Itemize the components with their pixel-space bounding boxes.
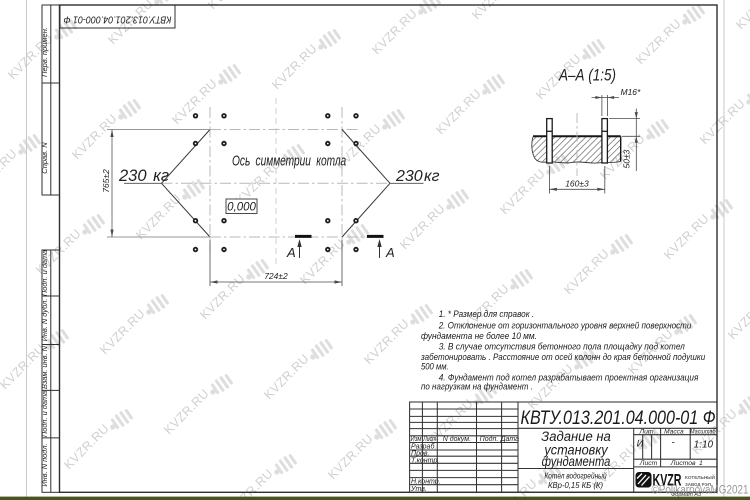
- svg-text:по нагрузкам на фундамент .: по нагрузкам на фундамент .: [421, 381, 533, 392]
- svg-text:КВТУ.013.201.04.000-01 Ф: КВТУ.013.201.04.000-01 Ф: [63, 14, 171, 25]
- svg-text:Т.контр.: Т.контр.: [411, 457, 439, 464]
- svg-text:765±2: 765±2: [101, 169, 111, 193]
- svg-text:Инв. N дубл.: Инв. N дубл.: [40, 299, 49, 342]
- svg-text:Пров.: Пров.: [411, 450, 430, 457]
- svg-text:Лит.: Лит.: [638, 428, 655, 435]
- svg-text:Подп. и дата: Подп. и дата: [40, 250, 49, 296]
- svg-text:забетонировать . Расстояние от: забетонировать . Расстояние от осей коло…: [420, 351, 705, 362]
- svg-text:Ось симметрии котла: Ось симметрии котла: [232, 153, 346, 169]
- svg-text:Справ. N: Справ. N: [40, 142, 49, 174]
- svg-text:N докум.: N докум.: [443, 435, 471, 443]
- svg-text:230 кг: 230 кг: [118, 167, 169, 185]
- svg-text:Изм: Изм: [411, 436, 422, 443]
- svg-text:фундамента не более 10 мм.: фундамента не более 10 мм.: [421, 331, 537, 342]
- svg-text:Н.контр.: Н.контр.: [411, 479, 441, 486]
- svg-text:Разраб.: Разраб.: [411, 443, 436, 451]
- svg-text:Перв. примен.: Перв. примен.: [40, 27, 49, 77]
- svg-text:©PolikarpovaMG2021: ©PolikarpovaMG2021: [652, 485, 749, 497]
- svg-text:Инв. N подл.: Инв. N подл.: [40, 443, 49, 486]
- svg-text:КВТУ.013.201.04.000-01 Ф: КВТУ.013.201.04.000-01 Ф: [521, 408, 716, 429]
- svg-text:724±2: 724±2: [264, 271, 288, 281]
- svg-text:Масса: Масса: [664, 428, 684, 435]
- svg-text:1: 1: [699, 460, 703, 467]
- svg-text:Подп. и дата: Подп. и дата: [40, 391, 49, 437]
- svg-text:50±3: 50±3: [622, 149, 632, 168]
- svg-text:Дата: Дата: [500, 436, 520, 443]
- svg-text:Взам. инв. N: Взам. инв. N: [40, 345, 49, 389]
- svg-text:0,000: 0,000: [227, 202, 256, 214]
- svg-text:2. Отклонение от горизонтально: 2. Отклонение от горизонтального уровня …: [438, 320, 692, 331]
- svg-text:Котел водогрейный: Котел водогрейный: [544, 471, 606, 481]
- svg-text:Подп.: Подп.: [480, 435, 499, 443]
- svg-text:А: А: [286, 245, 296, 260]
- svg-text:Лист: Лист: [423, 436, 437, 443]
- svg-text:А: А: [385, 245, 395, 260]
- svg-text:И: И: [637, 439, 644, 450]
- svg-text:А–А (1:5): А–А (1:5): [558, 67, 616, 85]
- svg-text:1:10: 1:10: [694, 440, 714, 451]
- svg-text:фундамента: фундамента: [542, 454, 611, 469]
- svg-text:230 кг: 230 кг: [395, 168, 440, 185]
- svg-text:Масштаб: Масштаб: [690, 427, 716, 435]
- svg-text:3. В случае отсутствия бетонно: 3. В случае отсутствия бетонного пола пл…: [439, 341, 685, 352]
- svg-text:КВр-0,15 КБ (К): КВр-0,15 КБ (К): [548, 481, 603, 490]
- svg-text:500 мм.: 500 мм.: [421, 361, 449, 372]
- svg-text:1. * Размер для справок .: 1. * Размер для справок .: [439, 308, 534, 319]
- svg-text:М16*: М16*: [621, 87, 642, 97]
- svg-text:Листов: Листов: [670, 460, 696, 467]
- svg-text:Лист: Лист: [639, 460, 658, 467]
- svg-text:Утв.: Утв.: [410, 486, 427, 493]
- svg-text:160±3: 160±3: [565, 179, 589, 189]
